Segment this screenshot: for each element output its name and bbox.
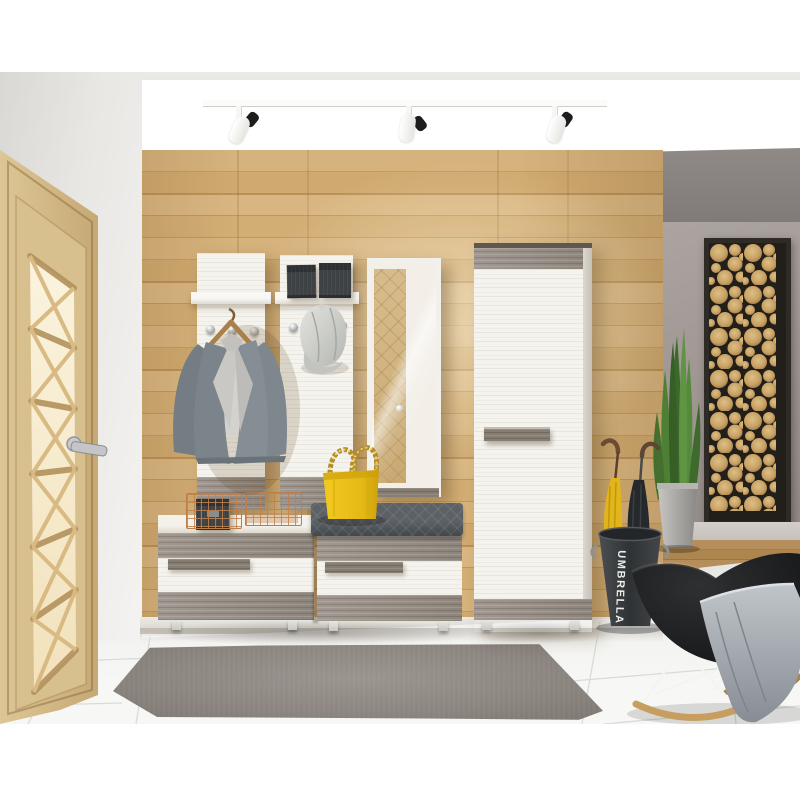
top-margin bbox=[0, 0, 800, 72]
rocking-chair bbox=[0, 0, 800, 800]
hallway-photo: /* fix cabinet inner heights: door 26..3… bbox=[0, 0, 800, 800]
bottom-margin bbox=[0, 724, 800, 800]
